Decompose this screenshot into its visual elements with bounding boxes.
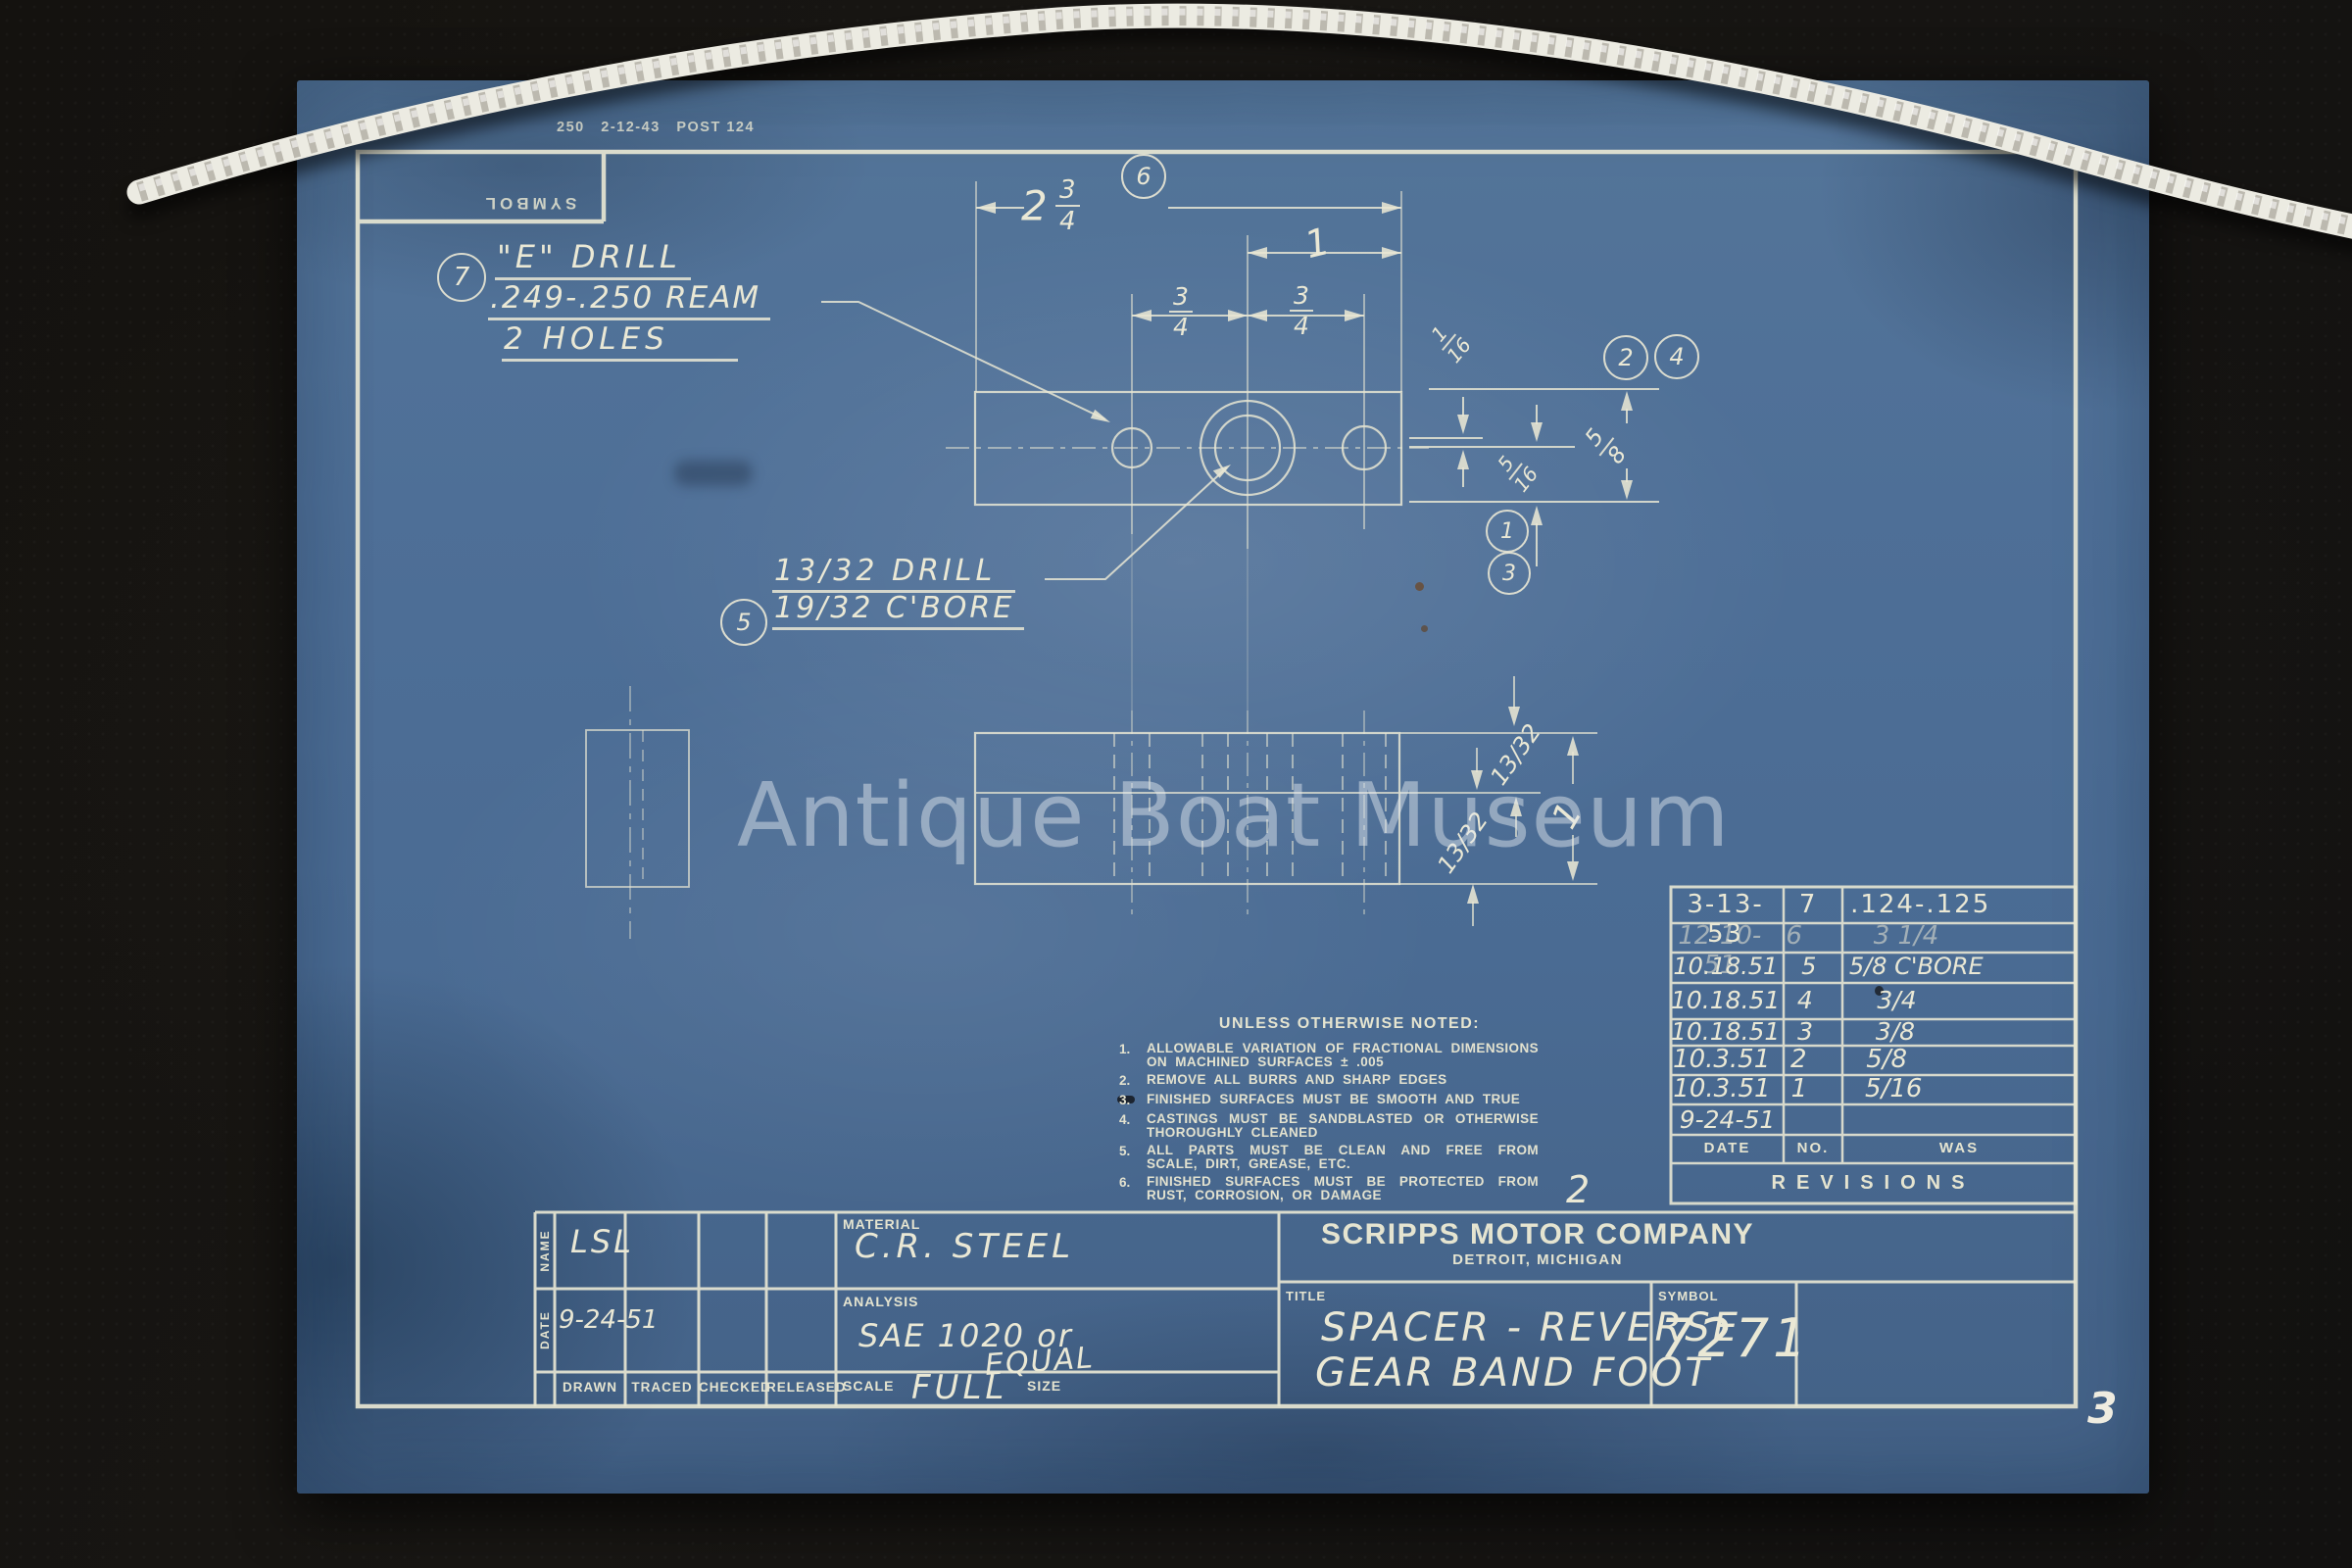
revision-date: 9-24-51: [1671, 1105, 1784, 1134]
page-number: 3: [2087, 1384, 2118, 1434]
revision-row: 10.3.51 2 5/8: [1671, 1045, 2076, 1074]
dim-overall-whole: 2: [1021, 182, 1048, 230]
dim-left-den: 4: [1173, 313, 1189, 339]
note-number: 3.: [1119, 1093, 1147, 1107]
symbol-box-label: SYMBOL: [461, 193, 598, 213]
revision-no: 3: [1780, 1017, 1830, 1046]
revision-was: 5/8: [1825, 1045, 2076, 1074]
dim-overall-den: 4: [1059, 207, 1076, 234]
revision-margin-mark: 2: [1566, 1168, 1590, 1211]
note-number: 1.: [1119, 1042, 1147, 1068]
dim-right-spacing: 34: [1290, 283, 1313, 338]
note-item: 5. ALL PARTS MUST BE CLEAN AND FREE FROM…: [1119, 1144, 1580, 1170]
symbol-label: SYMBOL: [1658, 1289, 1719, 1303]
title-value-line2: GEAR BAND FOOT: [1315, 1350, 1712, 1396]
name-label: NAME: [538, 1223, 552, 1278]
end-view-centerline: [630, 686, 643, 939]
callout-1: 1: [1500, 519, 1514, 544]
revision-was: 3/8: [1831, 1017, 2076, 1046]
revision-no: [1784, 1105, 1842, 1134]
revision-no: 4: [1780, 986, 1830, 1014]
general-notes: UNLESS OTHERWISE NOTED: 1. ALLOWABLE VAR…: [1119, 1015, 1580, 1206]
extension-lines: [976, 181, 1401, 549]
end-view: [586, 730, 689, 887]
view-connector-lines: [1132, 534, 1248, 710]
date-label: DATE: [538, 1302, 552, 1357]
material-value: C.R. STEEL: [855, 1227, 1074, 1266]
note-text: ALLOWABLE VARIATION OF FRACTIONAL DIMENS…: [1147, 1042, 1539, 1068]
callout-2: 2: [1618, 344, 1633, 371]
revisions-title: REVISIONS: [1671, 1172, 2076, 1195]
revision-row: 10.18.51 3 3/8: [1671, 1017, 2076, 1046]
callout-4: 4: [1669, 343, 1684, 370]
revision-date: 10.18.51: [1671, 1017, 1780, 1046]
note-text: ALL PARTS MUST BE CLEAN AND FREE FROM SC…: [1147, 1144, 1539, 1170]
note-number: 4.: [1119, 1112, 1147, 1139]
print-stamp: 250 2-12-43 POST 124: [557, 120, 755, 135]
callout-6: 6: [1136, 163, 1151, 190]
dim-right-den: 4: [1294, 312, 1309, 338]
note-item: 6. FINISHED SURFACES MUST BE PROTECTED F…: [1119, 1175, 1580, 1201]
company-location: DETROIT, MICHIGAN: [1279, 1251, 1796, 1268]
callout-5-balloon: 5: [720, 599, 767, 646]
revisions-header-date: DATE: [1671, 1140, 1784, 1156]
revision-row: 9-24-51: [1671, 1105, 2076, 1134]
revision-was: 5/16: [1826, 1074, 2076, 1103]
note-text: FINISHED SURFACES MUST BE SMOOTH AND TRU…: [1147, 1093, 1539, 1107]
scale-value: FULL: [911, 1368, 1007, 1407]
note-item: 4. CASTINGS MUST BE SANDBLASTED OR OTHER…: [1119, 1112, 1580, 1139]
e-drill-note-line2: .249-.250 REAM: [488, 280, 770, 320]
date-value: 9-24-51: [559, 1305, 658, 1335]
revision-row: 10.3.51 1 5/16: [1671, 1074, 2076, 1103]
released-label: RELEASED: [766, 1380, 836, 1395]
note-number: 5.: [1119, 1144, 1147, 1170]
callout-3: 3: [1502, 562, 1516, 586]
revision-date: 10.18.51: [1671, 953, 1781, 980]
watermark: Antique Boat Museum: [737, 764, 1731, 867]
note-text: FINISHED SURFACES MUST BE PROTECTED FROM…: [1147, 1175, 1539, 1201]
photo-of-blueprint: 250 2-12-43 POST 124 SYMBOL 7 "E" DRILL …: [0, 0, 2352, 1568]
revisions-header-row: DATE NO. WAS: [1671, 1140, 2076, 1156]
leader-lines: [821, 302, 1227, 579]
company-name: SCRIPPS MOTOR COMPANY: [1279, 1218, 1796, 1251]
drawn-label: DRAWN: [555, 1380, 625, 1395]
bore-note-line1: 13/32 DRILL: [772, 554, 1015, 593]
callout-1-balloon: 1: [1486, 510, 1529, 553]
revisions-header-was: WAS: [1842, 1140, 2076, 1156]
bore-note-line2: 19/32 C'BORE: [772, 591, 1024, 630]
dim-overall-width: 2 34: [1021, 177, 1080, 234]
note-number: 6.: [1119, 1175, 1147, 1201]
note-item: 2. REMOVE ALL BURRS AND SHARP EDGES: [1119, 1073, 1580, 1088]
e-drill-note-line1: "E" DRILL: [495, 238, 691, 280]
revision-row: 10.18.51 5 5/8 C'BORE: [1671, 953, 2076, 980]
callout-2-balloon: 2: [1603, 335, 1648, 380]
revision-no: 5: [1781, 953, 1837, 980]
revision-no: 2: [1772, 1045, 1825, 1074]
size-label: SIZE: [1027, 1378, 1061, 1394]
callout-4-balloon: 4: [1654, 334, 1699, 379]
revision-date: 10.3.51: [1671, 1045, 1772, 1074]
general-notes-title: UNLESS OTHERWISE NOTED:: [1119, 1015, 1580, 1033]
revision-was: 5/8 C'BORE: [1837, 953, 2076, 980]
note-item: 1. ALLOWABLE VARIATION OF FRACTIONAL DIM…: [1119, 1042, 1580, 1068]
callout-3-balloon: 3: [1488, 552, 1531, 595]
name-value: LSL: [570, 1223, 634, 1260]
note-text: CASTINGS MUST BE SANDBLASTED OR OTHERWIS…: [1147, 1112, 1539, 1139]
traced-label: TRACED: [625, 1380, 699, 1395]
note-item: 3. FINISHED SURFACES MUST BE SMOOTH AND …: [1119, 1093, 1580, 1107]
revision-date: 10.18.51: [1671, 986, 1780, 1014]
note-text: REMOVE ALL BURRS AND SHARP EDGES: [1147, 1073, 1539, 1088]
callout-6-balloon: 6: [1121, 154, 1166, 199]
dim-left-num: 3: [1169, 284, 1193, 313]
callout-5: 5: [736, 609, 751, 636]
scale-label: SCALE: [843, 1378, 894, 1394]
dim-right-num: 3: [1290, 283, 1313, 312]
note-number: 2.: [1119, 1073, 1147, 1088]
revisions-header-no: NO.: [1784, 1140, 1842, 1156]
callout-7: 7: [454, 263, 470, 292]
revision-row: 10.18.51 4 3/4: [1671, 986, 2076, 1014]
symbol-value: 7271: [1660, 1307, 1810, 1369]
title-label: TITLE: [1286, 1289, 1326, 1303]
revision-no: 1: [1773, 1074, 1826, 1103]
e-drill-note-line3: 2 HOLES: [502, 321, 738, 362]
revision-was: [1842, 1105, 2076, 1134]
dim-left-spacing: 34: [1169, 284, 1193, 339]
checked-label: CHECKED: [699, 1380, 766, 1395]
analysis-label: ANALYSIS: [843, 1294, 919, 1309]
revision-was: 3/4: [1830, 986, 2076, 1014]
dim-overall-num: 3: [1055, 177, 1080, 207]
revision-date: 10.3.51: [1671, 1074, 1773, 1103]
callout-7-balloon: 7: [437, 253, 486, 302]
